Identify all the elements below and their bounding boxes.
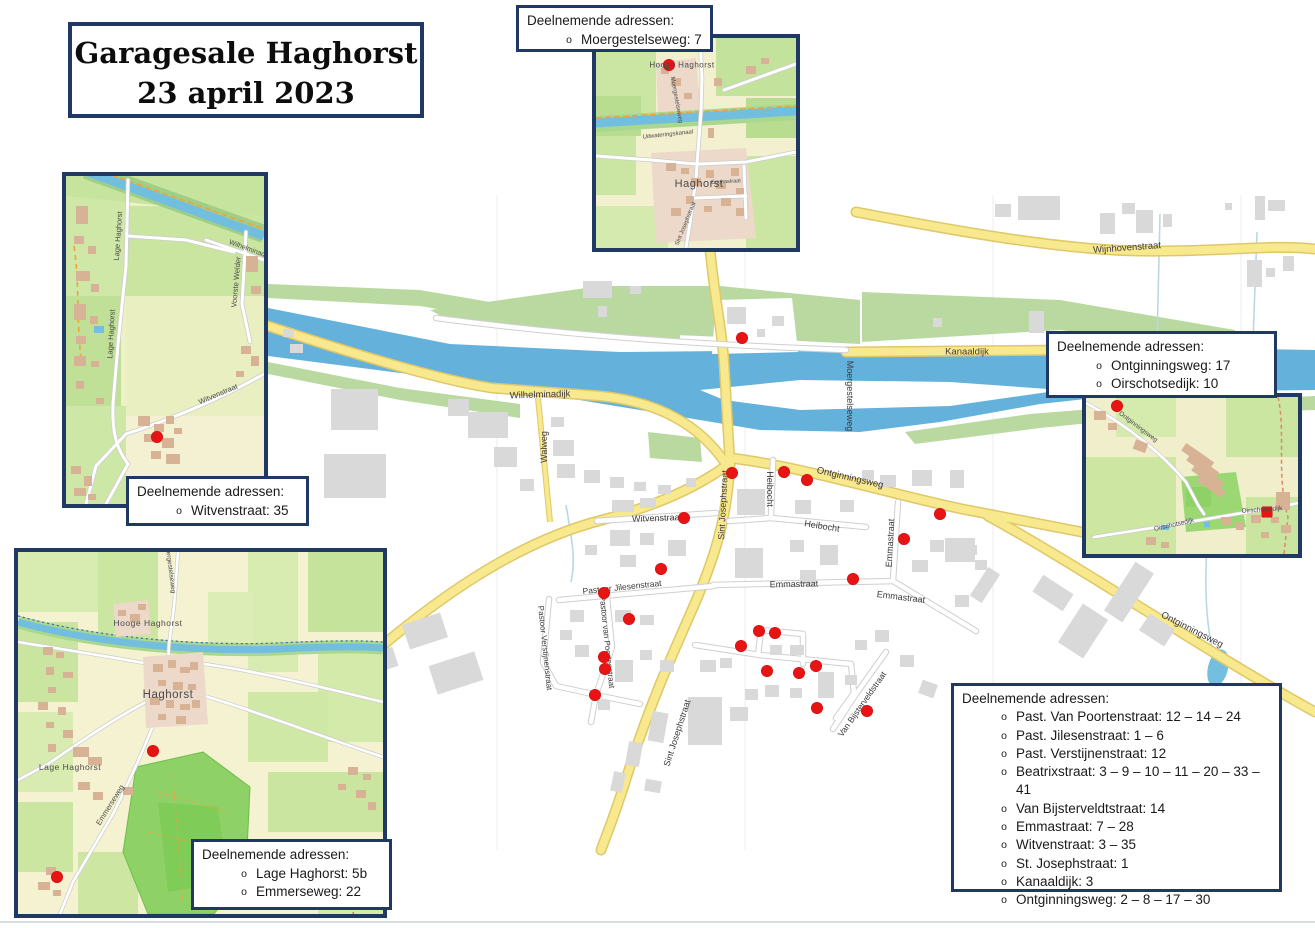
walweg-road [538,398,550,522]
bullet: o [992,891,1016,909]
callout-item: o Moergestelseweg: 7 [557,31,702,50]
callout-item: o Oirschotsedijk: 10 [1087,375,1266,394]
bullet: o [992,855,1016,873]
address-entry: Past. Jilesenstraat: 1 – 6 [1016,727,1164,745]
bullet: o [992,745,1016,763]
callout-heading: Deelnemende adressen: [527,12,702,31]
bullet: o [992,727,1016,745]
inset-map-oirschotsedijk: Ontginningsweg Oirschotsedijk Oirschotse… [1082,393,1302,558]
address-marker [52,872,63,883]
callout-item: oOntginningsweg: 2 – 8 – 17 – 30 [992,891,1271,909]
bullet: o [992,763,1016,800]
bullet: o [992,873,1016,891]
callout-heading: Deelnemende adressen: [1057,338,1266,357]
bullet: o [992,708,1016,726]
place-label-hooge-haghorst: Hooge Haghorst [649,61,714,70]
callout-item: oPast. Verstijnenstraat: 12 [992,745,1271,763]
callout-item: oPast. Jilesenstraat: 1 – 6 [992,727,1271,745]
callout-item: oBeatrixstraat: 3 – 9 – 10 – 11 – 20 – 3… [992,763,1271,800]
callout-item: o Emmerseweg: 22 [232,883,381,902]
callout-heading: Deelnemende adressen: [137,483,298,502]
callout-item: oVan Bijsterveldtstraat: 14 [992,800,1271,818]
callout-main-list: Deelnemende adressen: oPast. Van Poorten… [951,683,1282,892]
callout-item: oWitvenstraat: 3 – 35 [992,836,1271,854]
place-label-haghorst-2: Haghorst [143,689,194,701]
callout-heading: Deelnemende adressen: [962,690,1271,708]
title-line-1: Garagesale Haghorst [72,33,420,73]
place-label-hooge-haghorst-2: Hooge Haghorst [114,618,183,628]
bullet: o [232,883,256,902]
address-entry: Van Bijsterveldtstraat: 14 [1016,800,1165,818]
bullet: o [1087,357,1111,376]
address-entry: Ontginningsweg: 2 – 8 – 17 – 30 [1016,891,1210,909]
callout-item: o Ontginningsweg: 17 [1087,357,1266,376]
place-label-lage-haghorst: Lage Haghorst [39,762,101,772]
callout-heading: Deelnemende adressen: [202,846,381,865]
address-entry: St. Josephstraat: 1 [1016,855,1129,873]
callout-item: o Lage Haghorst: 5b [232,865,381,884]
inset-map-haghorst-village: Hooge Haghorst Haghorst Moergestelseweg … [592,34,800,252]
address-entry: Ontginningsweg: 17 [1111,357,1230,376]
address-entry: Oirschotsedijk: 10 [1111,375,1218,394]
address-entry: Kanaaldijk: 3 [1016,873,1093,891]
inset-top-graphics [596,38,796,248]
inset-right-graphics [1086,397,1298,554]
bullet: o [992,818,1016,836]
address-marker [152,432,163,443]
bullet: o [232,865,256,884]
address-entry: Beatrixstraat: 3 – 9 – 10 – 11 – 20 – 33… [1016,763,1271,800]
callout-ontginningsweg: Deelnemende adressen: o Ontginningsweg: … [1046,331,1277,398]
bullet: o [992,836,1016,854]
page-edge-line [0,921,1315,923]
callout-item: o Witvenstraat: 35 [167,502,298,521]
address-entry: Witvenstraat: 3 – 35 [1016,836,1136,854]
callout-moergestelseweg: Deelnemende adressen: o Moergestelseweg:… [516,5,713,52]
address-entry: Emmerseweg: 22 [256,883,361,902]
callout-item: oKanaaldijk: 3 [992,873,1271,891]
address-entry: Witvenstraat: 35 [191,502,289,521]
address-entry: Moergestelseweg: 7 [581,31,702,50]
inset-map-witvenstraat: Lage Haghorst Lage Haghorst Voorste Weld… [62,172,268,508]
callout-lage-haghorst: Deelnemende adressen: o Lage Haghorst: 5… [191,839,392,910]
flyer-page: Wijnhovenstraat Wilhelminadijk Kanaaldij… [0,0,1315,928]
bullet: o [167,502,191,521]
address-marker [148,746,159,757]
address-entry: Emmastraat: 7 – 28 [1016,818,1134,836]
address-entry: Past. Van Poortenstraat: 12 – 14 – 24 [1016,708,1241,726]
address-entry: Past. Verstijnenstraat: 12 [1016,745,1166,763]
inset-left-graphics [66,176,264,504]
title-box: Garagesale Haghorst 23 april 2023 [68,22,424,118]
callout-witvenstraat: Deelnemende adressen: o Witvenstraat: 35 [126,476,309,526]
callout-item: oEmmastraat: 7 – 28 [992,818,1271,836]
bullet: o [1087,375,1111,394]
callout-item: oSt. Josephstraat: 1 [992,855,1271,873]
callout-item: oPast. Van Poortenstraat: 12 – 14 – 24 [992,708,1271,726]
title-line-2: 23 april 2023 [72,73,420,113]
bullet: o [557,31,581,50]
address-entry: Lage Haghorst: 5b [256,865,367,884]
bullet: o [992,800,1016,818]
